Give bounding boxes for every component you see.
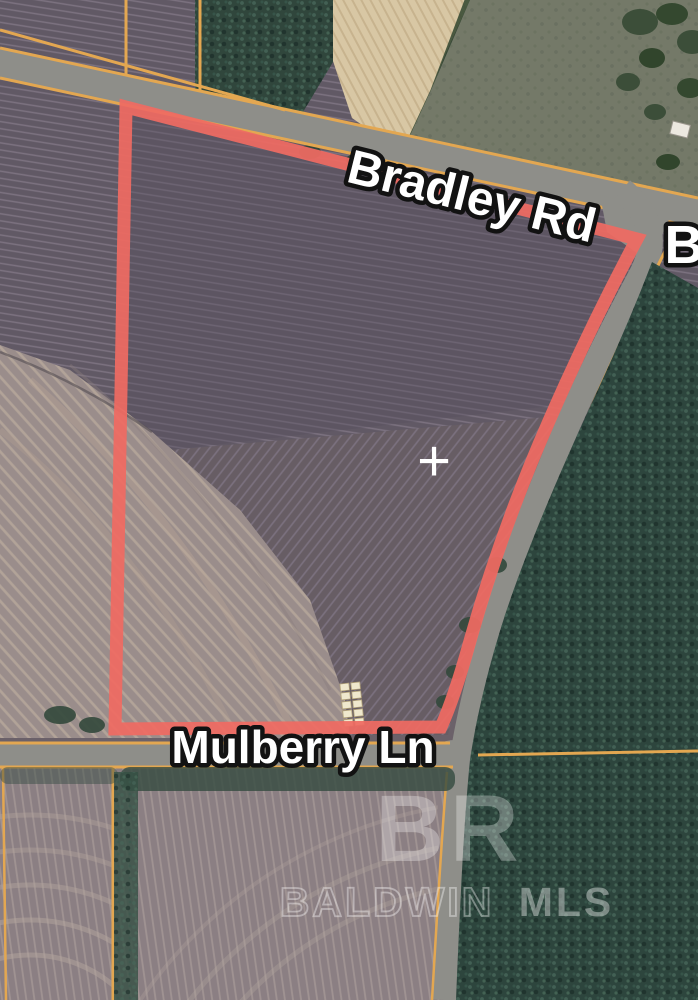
satellite-map-viewport[interactable]: + Bradley Rd B Mulberry Ln BR BALDWIN ML… bbox=[0, 0, 698, 1000]
watermark-name: BALDWIN bbox=[280, 879, 495, 925]
watermark-logo: BR bbox=[375, 776, 524, 882]
road-label-partial-b: B bbox=[665, 215, 698, 275]
map-center-crosshair-icon: + bbox=[417, 429, 451, 494]
svg-text:BALDWIN MLS: BALDWIN MLS bbox=[280, 879, 615, 925]
road-label-mulberry: Mulberry Ln bbox=[171, 721, 434, 773]
watermark-org: MLS bbox=[519, 879, 615, 925]
satellite-map-image: + Bradley Rd B Mulberry Ln BR BALDWIN ML… bbox=[0, 0, 698, 1000]
